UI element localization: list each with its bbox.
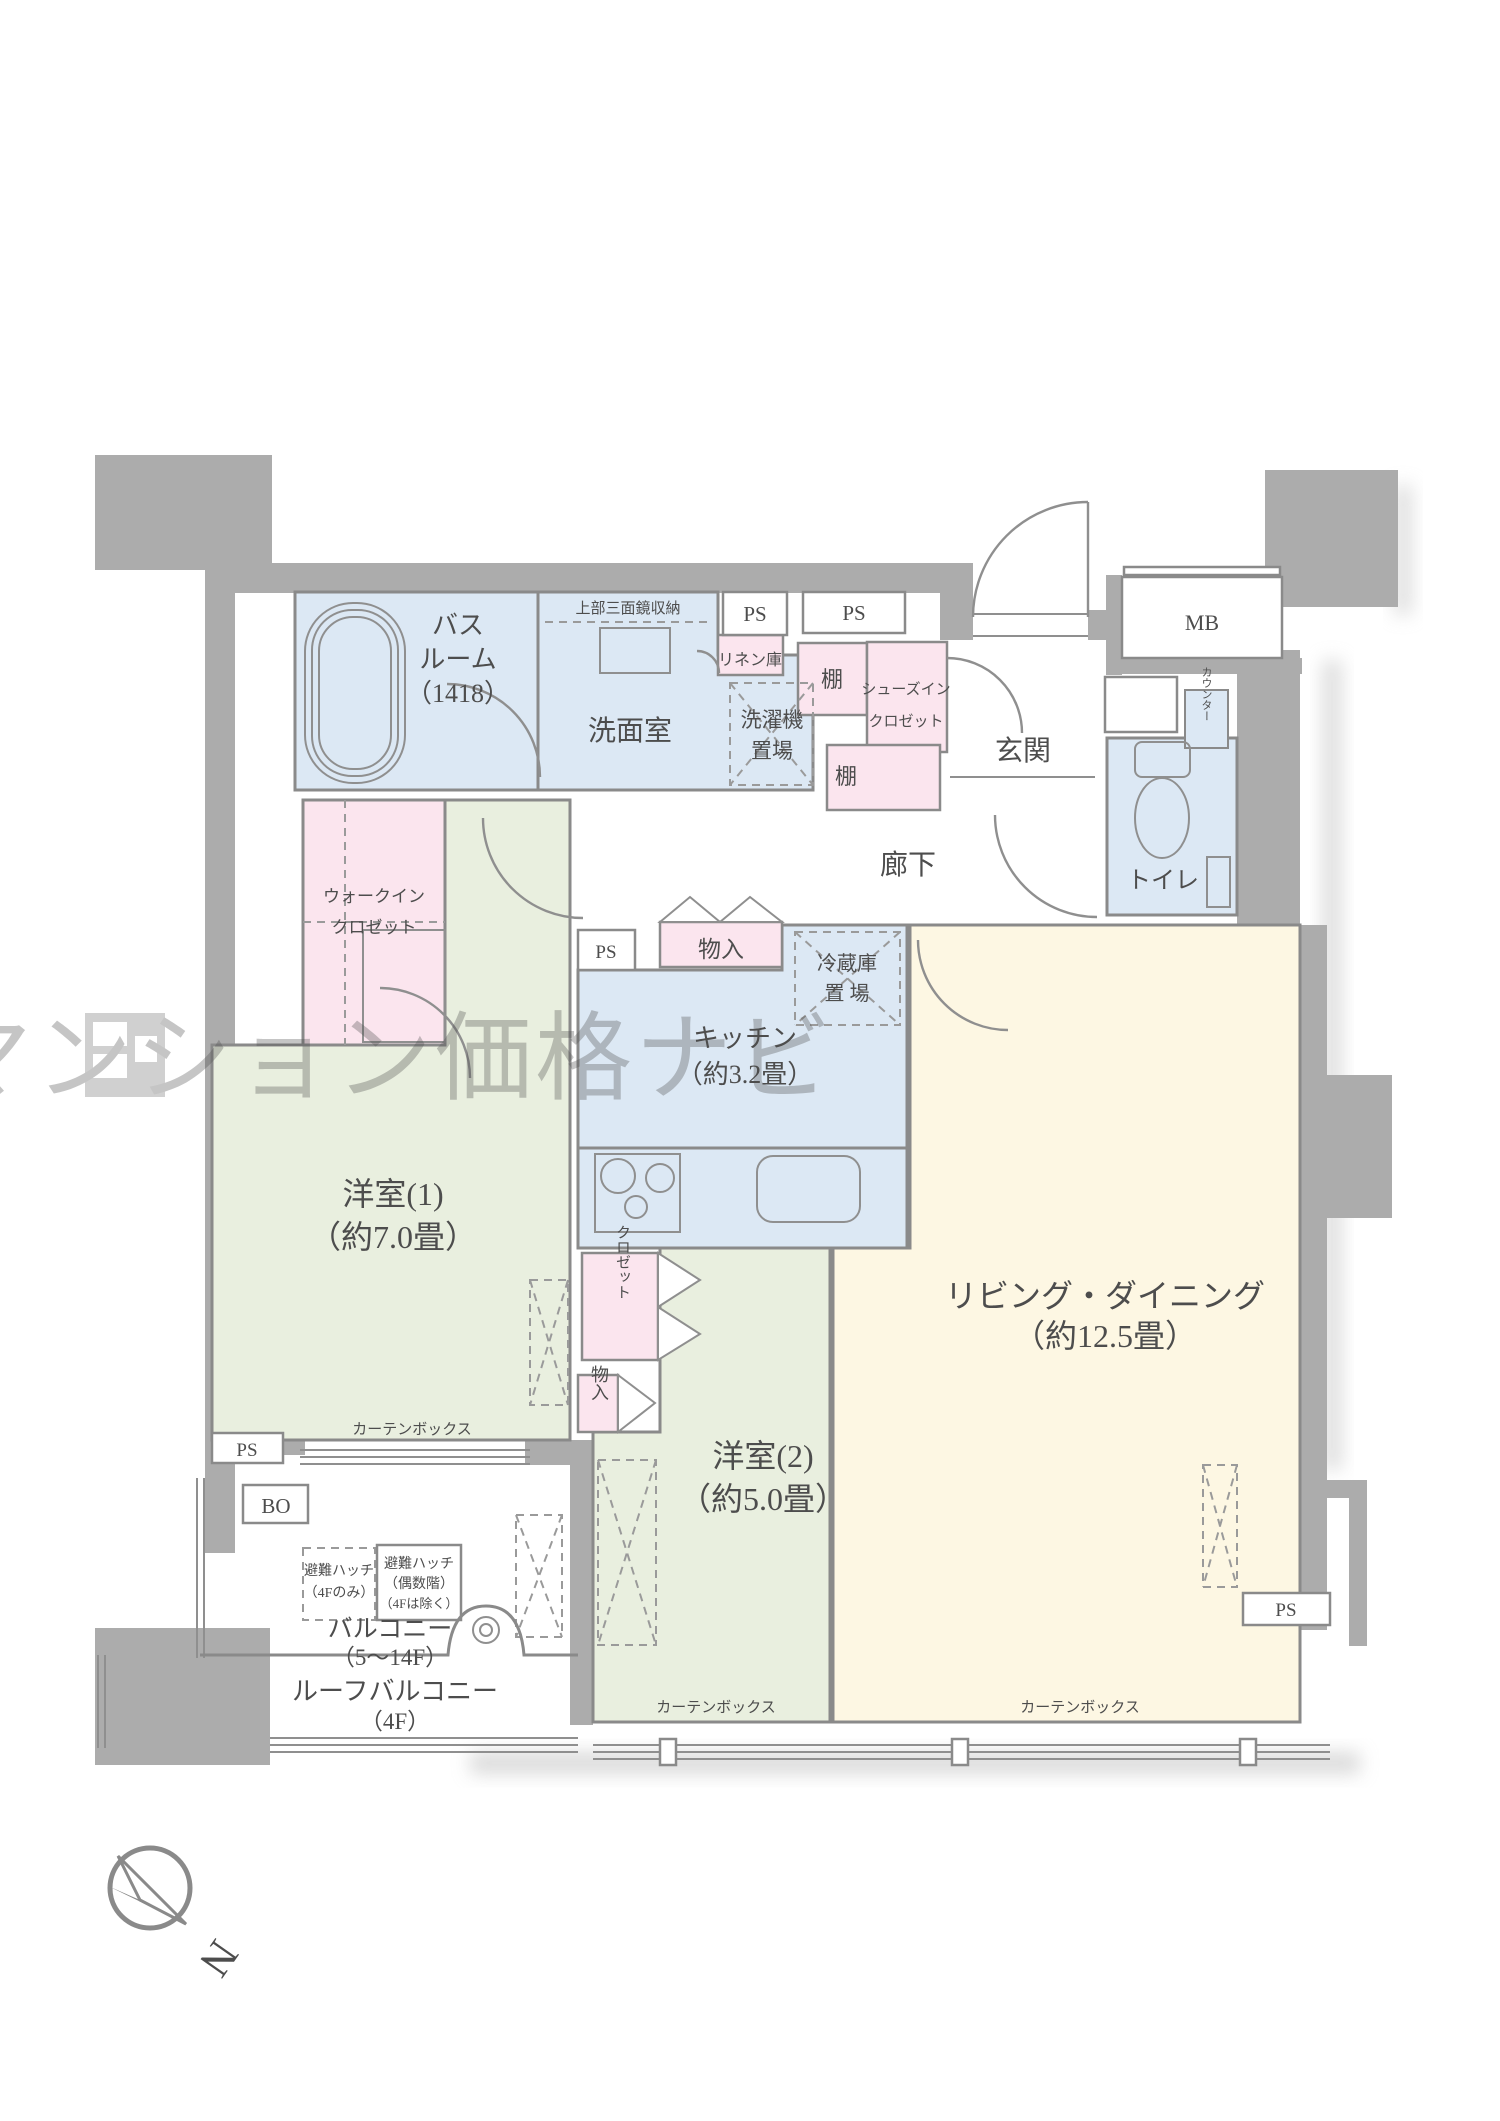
curtain-box-label-2: カーテンボックス — [656, 1699, 776, 1716]
counter-label: カウンター — [1200, 666, 1212, 721]
bo-label: BO — [261, 1494, 290, 1518]
room1-label-1: 洋室(1) — [342, 1176, 443, 1212]
window-mullion-1 — [660, 1739, 676, 1765]
bathroom-label-2: ルーム — [419, 645, 496, 674]
wall-top — [225, 563, 940, 593]
wall-jog-right-1 — [1327, 1480, 1367, 1498]
roof-balcony-label-2: （4F） — [360, 1709, 430, 1734]
walkin-closet-label-2: クロゼット — [332, 918, 417, 937]
shelf-lower-label: 棚 — [835, 764, 857, 789]
walkin-closet-label-1: ウォークイン — [323, 887, 425, 906]
entrance-label: 玄関 — [995, 735, 1051, 767]
ps-label-top2: PS — [842, 601, 865, 625]
pillar-bottom-left — [95, 1628, 270, 1765]
window-mullion-2 — [952, 1739, 968, 1765]
room2-label-2: （約5.0畳） — [679, 1481, 847, 1517]
shoes-closet-label-1: シューズイン — [861, 681, 950, 698]
hatch-even-label-1: 避難ハッチ — [384, 1556, 454, 1572]
pillar-top-right — [1265, 470, 1398, 607]
bathroom-label-1: バス — [432, 611, 484, 640]
living-label-1: リビング・ダイニング — [945, 1278, 1265, 1314]
window-mullion-3 — [1240, 1739, 1256, 1765]
toilet-label: トイレ — [1127, 868, 1199, 894]
ps-label-kitchen: PS — [595, 942, 616, 963]
storage-kitchen-label: 物入 — [698, 937, 744, 962]
ps-label-bottom-right: PS — [1275, 1600, 1296, 1621]
living-label-2: （約12.5畳） — [1013, 1318, 1197, 1354]
closet-room2-label: クロゼット — [614, 1225, 631, 1300]
hatch-4f-label-2: （4Fのみ） — [304, 1585, 375, 1601]
curtain-box-label-1: カーテンボックス — [352, 1421, 472, 1438]
shelf-upper-label: 棚 — [821, 667, 843, 692]
hatch-even-label-3: （4Fは除く） — [380, 1596, 459, 1611]
fridge-label-1: 冷蔵庫 — [817, 952, 877, 975]
wall-balcony-divider — [570, 1440, 593, 1725]
ps-box-right — [1105, 677, 1177, 732]
pillar-right-mid — [1300, 1075, 1392, 1218]
washroom-label: 洗面室 — [588, 715, 672, 747]
storage-room2-label: 物入 — [589, 1365, 609, 1401]
roof-balcony-label-1: ルーフバルコニー — [292, 1677, 498, 1706]
ps-label-bottom-left: PS — [236, 1440, 257, 1461]
shoes-closet-label-2: クロゼット — [868, 713, 943, 730]
curtain-box-label-3: カーテンボックス — [1020, 1699, 1140, 1716]
mb-label: MB — [1185, 610, 1219, 635]
floorplan-page: バス ルーム （1418） 上部三面鏡収納 洗面室 洗濯機 置場 リネン庫 PS… — [0, 0, 1500, 2121]
balcony-label-2: （5〜14F） — [332, 1645, 448, 1670]
balcony-label-1: バルコニー — [328, 1616, 453, 1643]
shadow-bottom — [470, 1752, 1360, 1774]
watermark-text: 湾岸中古マンション価格ナビ — [0, 1006, 835, 1113]
laundry-label-2: 置場 — [751, 739, 793, 763]
bathroom-label-3: （1418） — [406, 679, 510, 708]
room1-label-2: （約7.0畳） — [309, 1219, 477, 1255]
fridge-label-2: 置 場 — [825, 982, 870, 1005]
wall-jog-right-2 — [1349, 1496, 1367, 1646]
watermark-group: 湾岸中古マンション価格ナビ — [0, 1006, 835, 1113]
linen-label: リネン庫 — [718, 651, 782, 669]
mirror-storage-label: 上部三面鏡収納 — [575, 599, 680, 617]
wall-entrance-jog — [940, 563, 973, 640]
room2-label-1: 洋室(2) — [712, 1438, 813, 1474]
ps-label-top1: PS — [743, 602, 766, 626]
mb-slit — [1124, 567, 1280, 575]
floorplan-drawing: バス ルーム （1418） 上部三面鏡収納 洗面室 洗濯機 置場 リネン庫 PS… — [0, 0, 1500, 2121]
hatch-even-label-2: （偶数階） — [384, 1576, 454, 1592]
wall-right-living — [1300, 925, 1327, 1630]
laundry-label-1: 洗濯機 — [741, 708, 804, 732]
pillar-top-left — [95, 455, 272, 570]
wall-right-band — [1237, 650, 1300, 940]
hallway-label: 廊下 — [880, 849, 936, 881]
hatch-4f-label-1: 避難ハッチ — [304, 1563, 374, 1579]
